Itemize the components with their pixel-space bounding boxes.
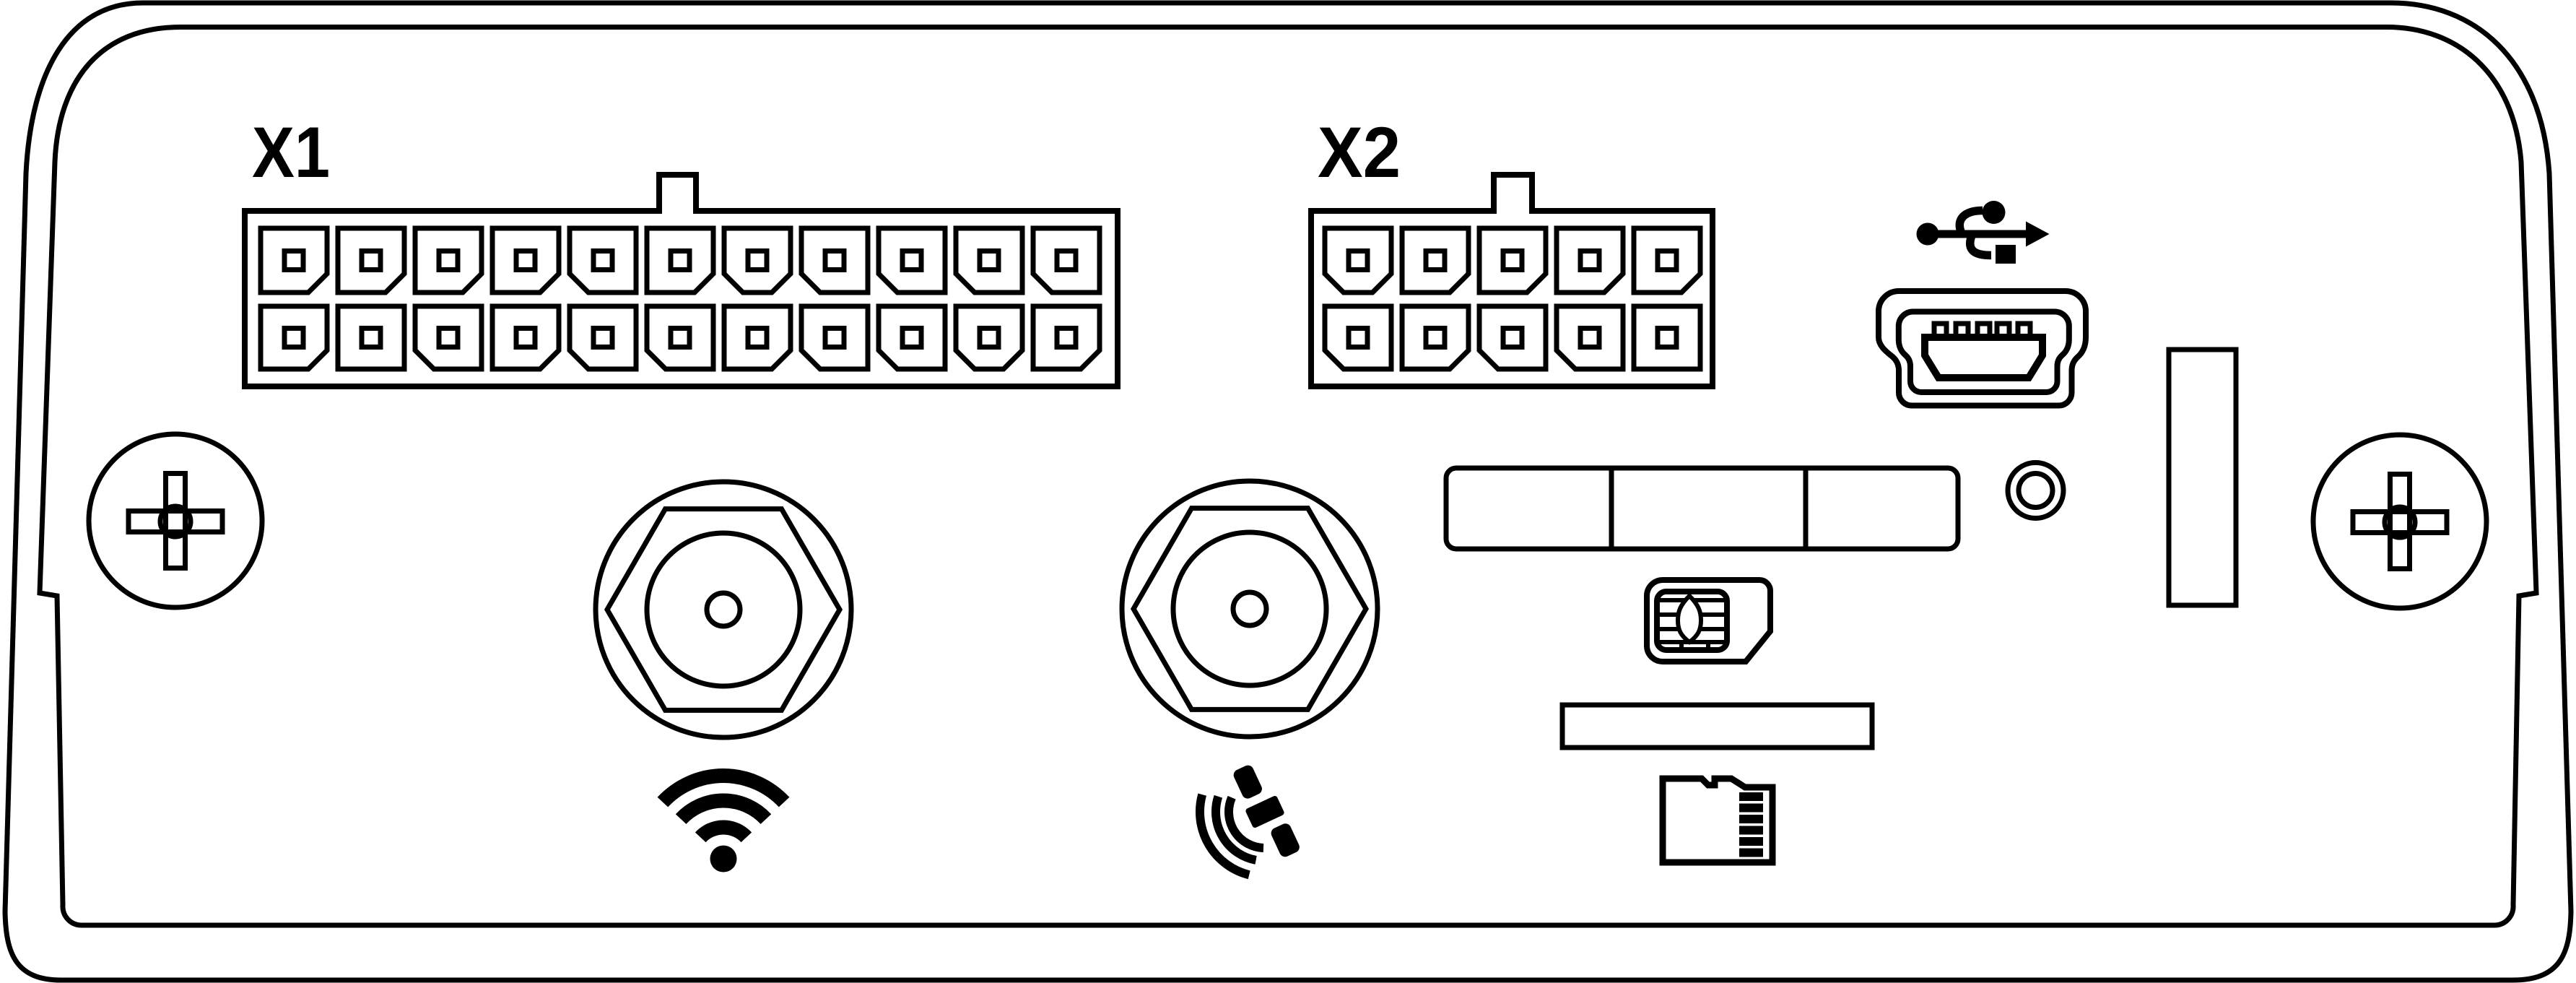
svg-text:X1: X1 — [252, 112, 330, 192]
svg-text:X2: X2 — [1318, 112, 1401, 192]
